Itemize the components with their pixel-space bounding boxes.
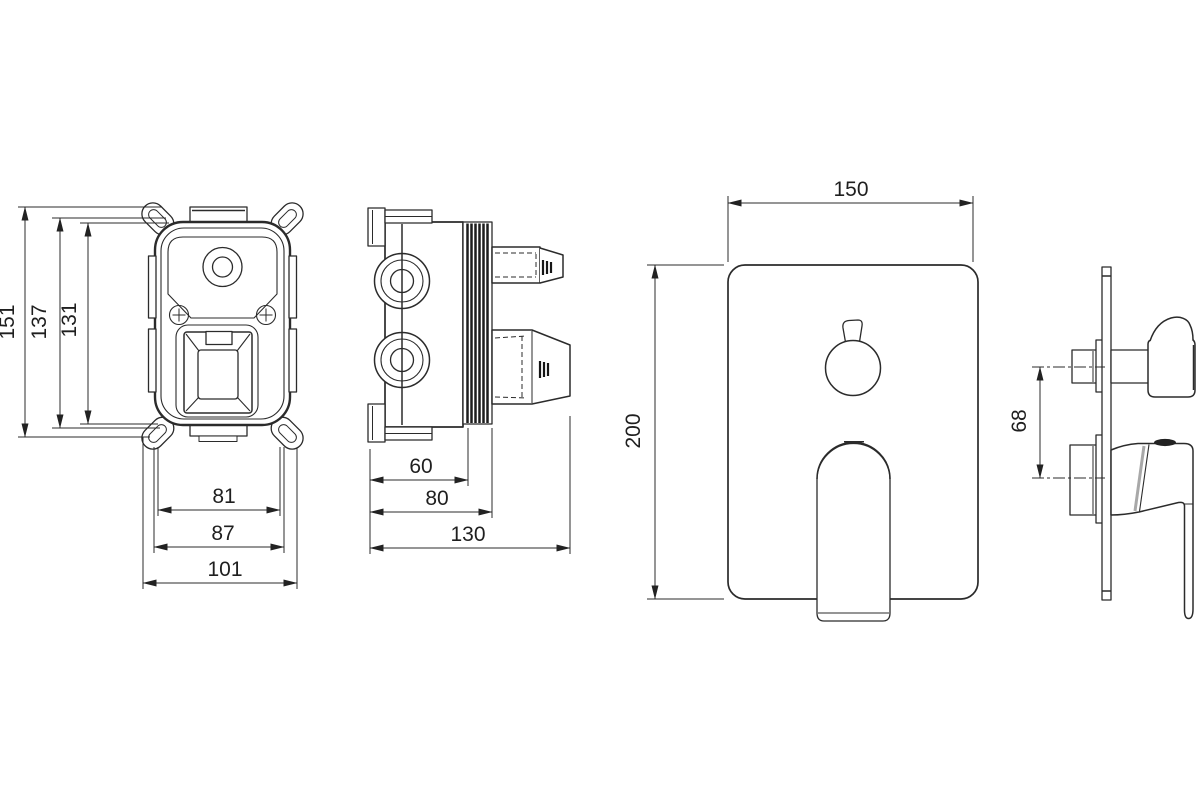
trim-plate-front-view: 150 200 (622, 178, 978, 621)
dim-label-depth-to-flange: 80 (425, 487, 448, 510)
trim-side-view: 68 (1008, 267, 1195, 619)
diverter-knob-side (1111, 317, 1195, 397)
dimension-width-body: 81 (158, 447, 280, 516)
dimension-height-body: 131 (58, 223, 169, 424)
mixer-lever-side (1111, 439, 1193, 619)
top-connection-tab (190, 207, 247, 223)
dim-label-handle-axis-spacing: 68 (1008, 409, 1031, 432)
rough-in-valve-front-view: 151 137 131 81 87 (0, 198, 308, 589)
dimension-trim-height: 200 (622, 265, 724, 599)
bottom-connection-tab (190, 424, 247, 442)
outlet-stub-bottom (492, 330, 570, 404)
dim-label-trim-width: 150 (833, 178, 868, 201)
technical-drawing-canvas: 151 137 131 81 87 (0, 0, 1200, 800)
outlet-stub-top (492, 247, 563, 283)
diverter-housing-rear (1072, 340, 1103, 392)
dim-label-height-body: 131 (58, 302, 81, 337)
trim-plate-side-profile (1102, 267, 1111, 600)
diverter-knob-circle (826, 341, 881, 396)
dimension-height-mounting: 137 (28, 218, 166, 428)
dimension-trim-width: 150 (728, 178, 973, 262)
shower-mixer-installation-drawing: 151 137 131 81 87 (0, 0, 1200, 800)
mixer-lever-handle (817, 442, 890, 621)
dim-label-height-overall: 151 (0, 304, 19, 339)
dim-label-depth-body: 60 (409, 455, 432, 478)
dim-label-width-overall: 101 (207, 558, 242, 581)
valve-side-body (385, 222, 463, 427)
lever-housing-rear (1070, 435, 1103, 523)
dimension-width-overall: 101 (143, 437, 297, 589)
dim-label-height-mounting: 137 (28, 304, 51, 339)
dimension-height-overall: 151 (0, 207, 162, 437)
dim-label-depth-overall: 130 (450, 523, 485, 546)
ribbed-flange-band (463, 222, 492, 424)
dim-label-width-mounting: 87 (211, 522, 234, 545)
dim-label-trim-height: 200 (622, 413, 645, 448)
dim-label-width-body: 81 (212, 485, 235, 508)
rough-in-valve-side-view: 60 80 130 (368, 208, 570, 554)
lever-top-accent (1154, 439, 1176, 446)
